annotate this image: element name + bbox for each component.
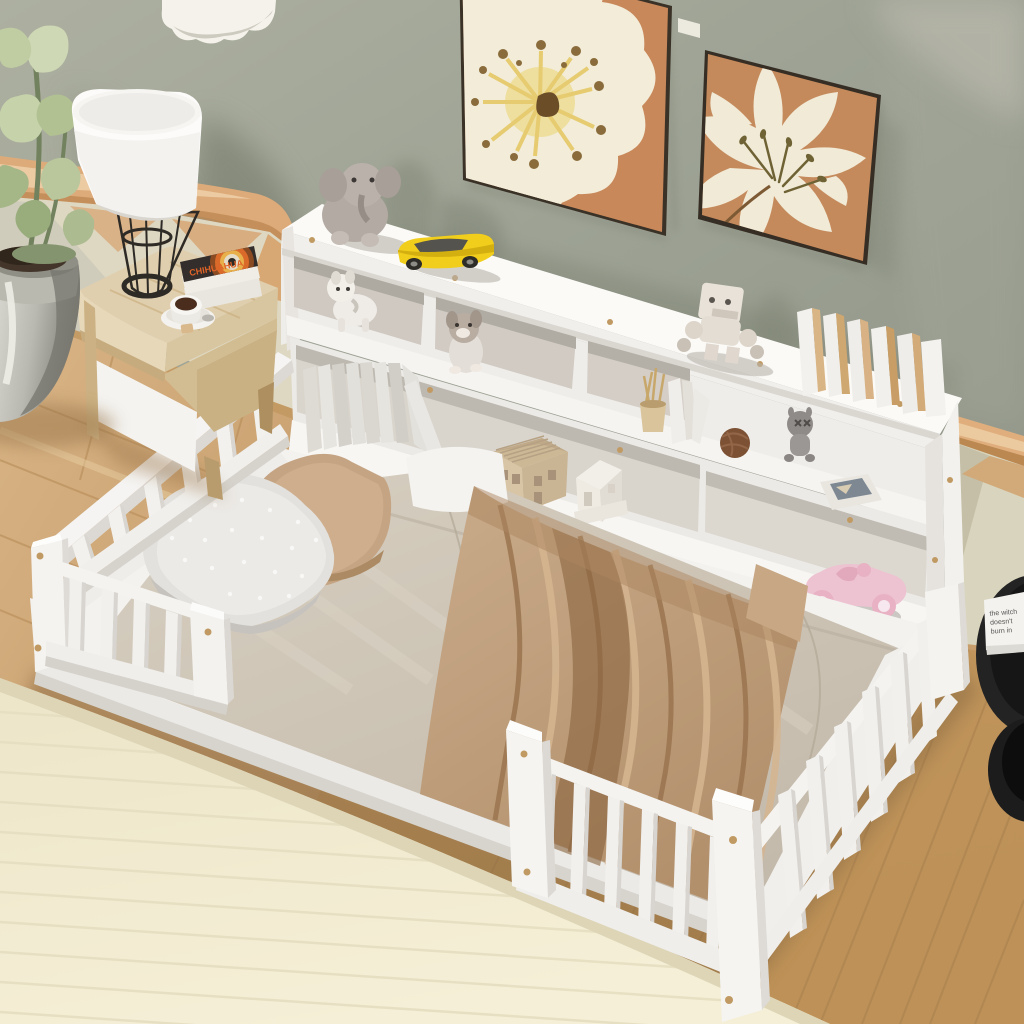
svg-text:burn in: burn in: [991, 627, 1013, 635]
